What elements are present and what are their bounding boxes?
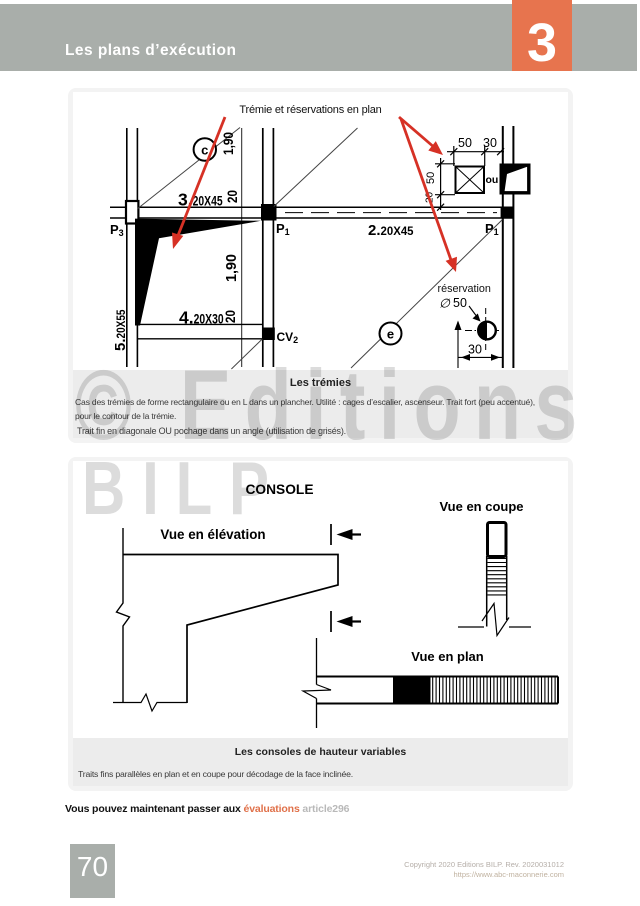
svg-text:ou: ou [486, 174, 499, 186]
svg-text:Trémie et réservations en plan: Trémie et réservations en plan [239, 104, 381, 116]
svg-text:50: 50 [458, 136, 472, 150]
svg-text:20: 20 [223, 310, 238, 323]
svg-text:P1: P1 [276, 221, 290, 237]
svg-text:Vue en coupe: Vue en coupe [439, 499, 523, 514]
svg-text:∅: ∅ [439, 297, 451, 311]
svg-text:c: c [201, 143, 208, 158]
svg-text:P3: P3 [110, 222, 124, 238]
svg-text:30: 30 [483, 136, 497, 150]
svg-text:4.20X30: 4.20X30 [179, 308, 224, 328]
svg-text:Vue en plan: Vue en plan [411, 649, 484, 664]
svg-text:e: e [387, 327, 394, 342]
svg-text:50: 50 [453, 296, 467, 310]
svg-text:1,90: 1,90 [223, 254, 240, 282]
svg-text:50: 50 [425, 172, 437, 184]
svg-text:réservation: réservation [438, 283, 491, 295]
svg-text:3.20X45: 3.20X45 [178, 190, 223, 210]
svg-text:20: 20 [225, 190, 240, 203]
svg-text:P1: P1 [485, 221, 499, 237]
svg-text:5.20X55: 5.20X55 [112, 309, 129, 351]
svg-text:2.20X45: 2.20X45 [368, 222, 414, 239]
svg-text:1,90: 1,90 [221, 132, 236, 155]
svg-text:CV2: CV2 [277, 330, 299, 345]
